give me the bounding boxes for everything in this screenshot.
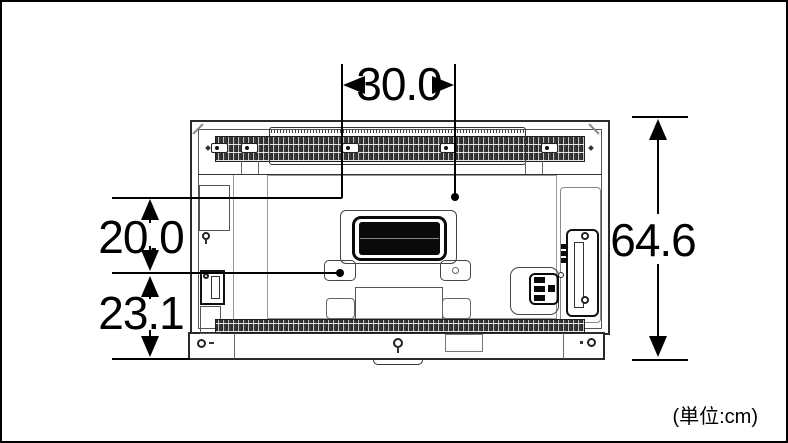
screw-icon (558, 272, 564, 278)
connector-block (561, 251, 567, 256)
screw-stem (397, 348, 399, 353)
connector-block (561, 258, 567, 263)
cavity-divider-line (360, 238, 439, 239)
vent-screw-mount (211, 143, 228, 153)
screw-slot (209, 342, 214, 344)
dim-30-label: 30.0 (344, 61, 454, 107)
screw-icon (587, 338, 596, 347)
panel-divider (542, 161, 543, 174)
panel-divider (563, 333, 564, 359)
screw-stem (205, 240, 207, 244)
screw-icon (581, 296, 589, 304)
av-port (534, 295, 545, 301)
dim-20-bottom-line (112, 272, 338, 274)
dim-30-extension-right (454, 64, 456, 194)
dim-64-label: 64.6 (601, 217, 705, 263)
av-port (534, 277, 545, 283)
dim-64-tick-bottom (632, 359, 688, 361)
dim-64-line-bottom (657, 264, 659, 340)
stand-flank-left (326, 298, 355, 319)
dim-20-end-dot (336, 269, 344, 277)
stand-flank-right (442, 298, 471, 319)
av-port (534, 286, 545, 292)
left-mid-slot (211, 276, 220, 299)
panel-divider (525, 161, 526, 174)
unit-note: (単位:cm) (648, 405, 758, 429)
screw-icon (202, 232, 210, 240)
dim-64-arrowhead-down (649, 336, 667, 357)
screw-icon (197, 339, 206, 348)
vent-screw-mount (241, 143, 258, 153)
connector-block (561, 244, 567, 249)
screw-icon (393, 338, 403, 348)
screw-icon (581, 232, 589, 240)
bottom-vent-grille (215, 319, 585, 333)
panel-divider (234, 333, 235, 359)
speaker-top-hatch (271, 129, 524, 133)
label-plate (445, 334, 483, 352)
mount-hole-icon (452, 267, 459, 274)
dim-23-bottom-line (112, 358, 190, 360)
dim-23-arrowhead-down (141, 336, 159, 357)
vent-screw-mount (342, 143, 359, 153)
panel-seam-horizontal (198, 174, 602, 175)
dim-23-label: 23.1 (89, 290, 193, 336)
dim-64-line-top (657, 135, 659, 214)
dim-30-end-dot (451, 193, 459, 201)
dim-64-tick-top (632, 116, 688, 118)
screw-dot (580, 341, 583, 344)
vent-screw-mount (541, 143, 558, 153)
dim-20-arrowhead-down (141, 250, 159, 271)
av-port-square (548, 285, 555, 292)
left-top-panel (199, 185, 230, 231)
panel-divider (241, 161, 242, 174)
dimension-diagram: 30.0 20.0 23.1 64.6 (単位:cm) (0, 0, 788, 443)
dim-64-arrowhead-up (649, 119, 667, 140)
panel-divider (258, 161, 259, 174)
